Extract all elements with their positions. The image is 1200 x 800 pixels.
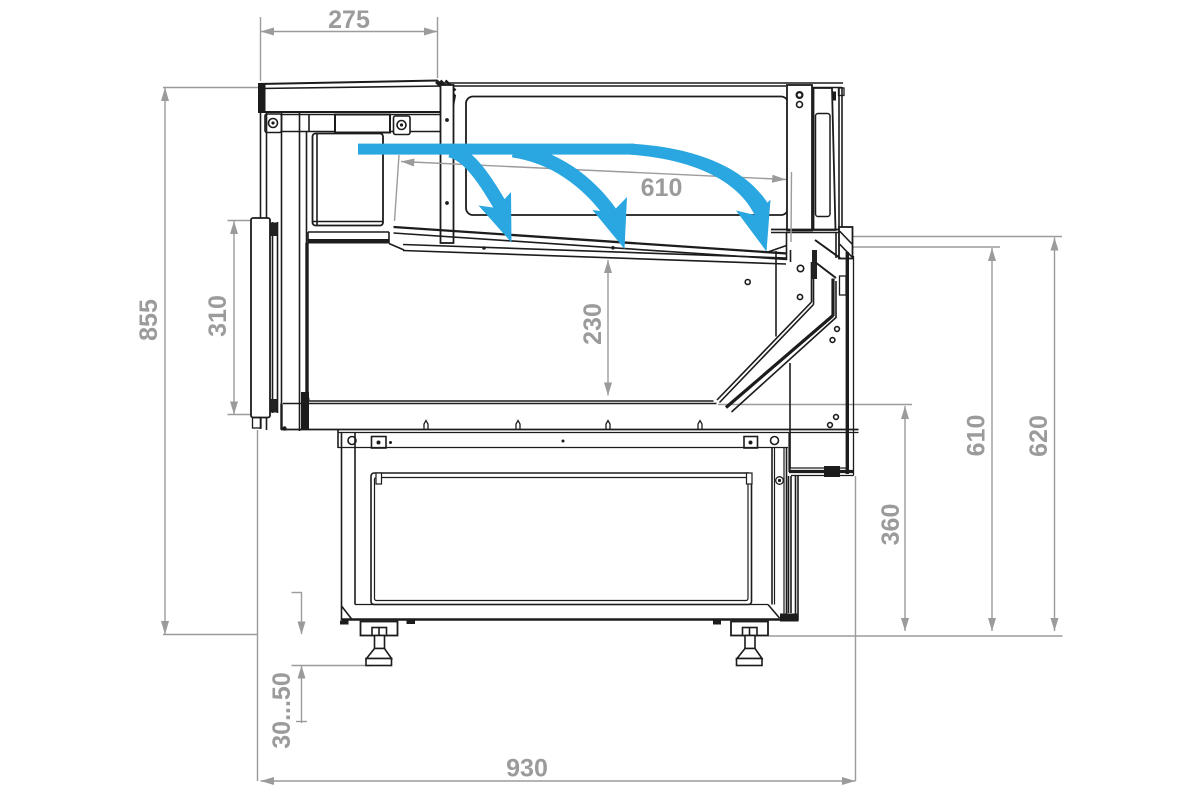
svg-text:360: 360 xyxy=(877,504,905,546)
svg-text:610: 610 xyxy=(963,415,991,457)
svg-text:855: 855 xyxy=(135,299,163,341)
svg-text:310: 310 xyxy=(204,295,232,337)
svg-text:930: 930 xyxy=(506,755,548,783)
svg-text:620: 620 xyxy=(1025,415,1053,457)
svg-text:275: 275 xyxy=(328,6,370,34)
svg-text:30...50: 30...50 xyxy=(268,672,296,748)
svg-text:610: 610 xyxy=(641,174,683,202)
svg-text:230: 230 xyxy=(579,303,607,345)
